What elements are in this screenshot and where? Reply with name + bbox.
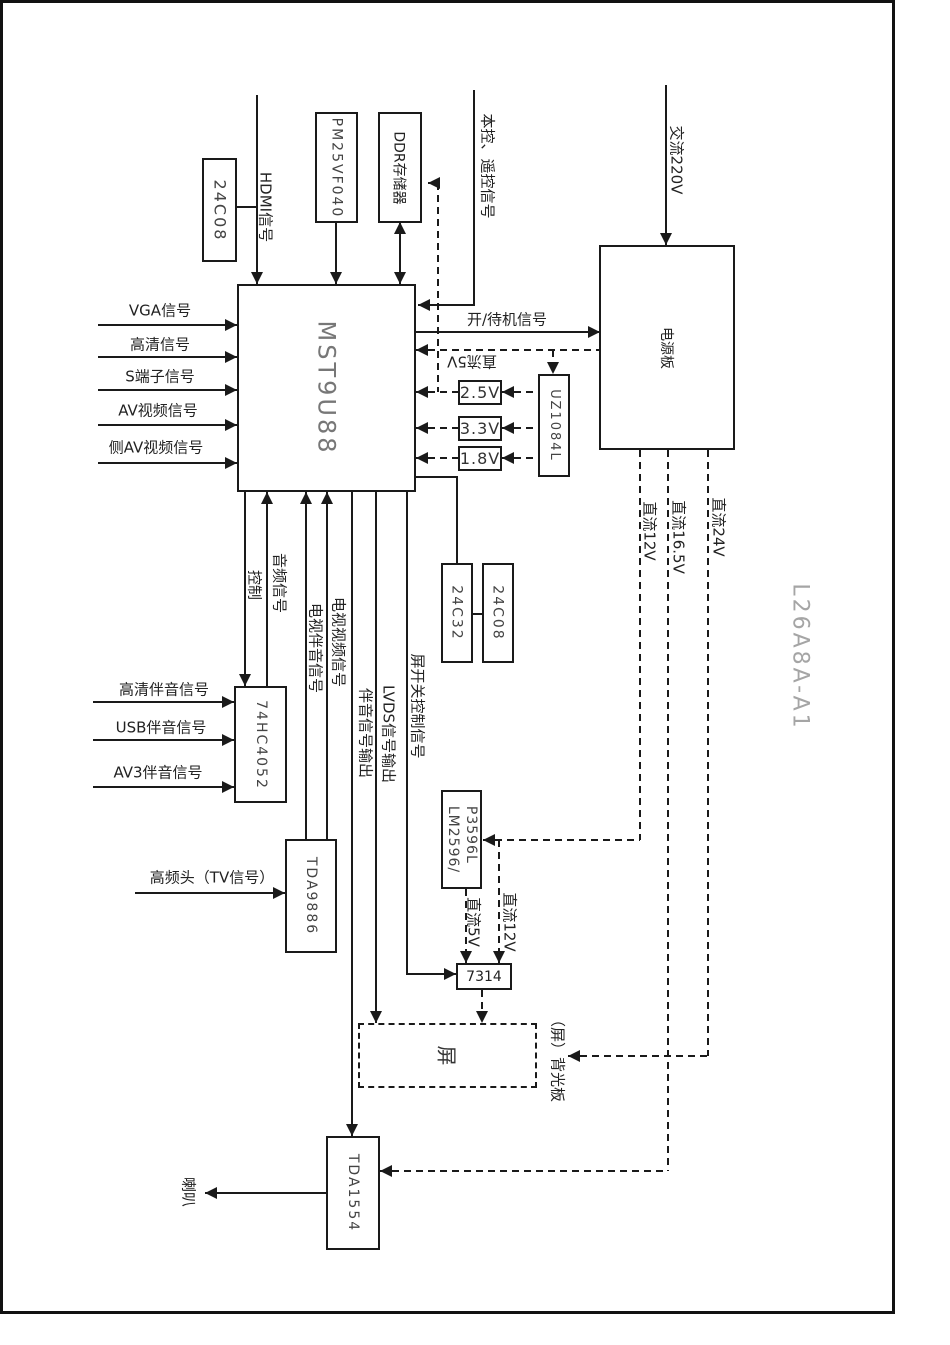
arrowhead [225,419,237,431]
arrowhead [225,457,237,469]
label-hd-audio: 高清伴音信号 [119,679,209,700]
label-tuner: 高频头（TV信号） [150,867,274,888]
rail-2v5: 2.5V [458,380,502,405]
wire-ddr-feed-v [437,183,439,392]
arrowhead [428,177,440,189]
arrowhead [222,696,234,708]
chip-label-line2: P3596L [462,806,480,873]
label-lvds-out: LVDS信号输出 [379,685,400,783]
chip-label: 24C32 [449,585,465,640]
arrowhead [547,362,559,374]
arrowhead [416,386,428,398]
label-audio-out: 伴音信号输出 [356,688,377,778]
arrowhead [394,272,406,284]
label-vga: VGA信号 [129,300,191,321]
label-usb-audio: USB伴音信号 [116,717,207,738]
wire-av3-audio [93,786,234,788]
model-number: L26A8A-A1 [788,583,813,730]
arrowhead [394,222,406,234]
arrowhead [418,299,430,311]
arrowhead [330,272,342,284]
wire-eeprom-top-stub [237,206,257,208]
label-standby-5v: 直流5V [447,352,497,373]
rail-1v8: 1.8V [458,446,502,471]
schematic-page: 24C08 PM25VF040 DDR存储器 MST9U88 电源板 UZ108… [0,0,950,1345]
rail-3v3: 3.3V [458,416,502,441]
chip-label: MST9U88 [312,321,340,456]
chip-label: 24C08 [210,179,229,241]
arrowhead [239,674,251,686]
arrowhead [460,951,472,963]
arrowhead [225,351,237,363]
label-tv-audio: 电视伴音信号 [306,603,327,693]
wire-24c32-h [416,476,458,478]
chip-audio-amp-tda1554: TDA1554 [326,1136,380,1250]
chip-label: PM25VF040 [329,117,345,218]
label-hd: 高清信号 [130,334,190,355]
arrowhead [444,968,456,980]
arrowhead [493,951,505,963]
arrowhead [251,272,263,284]
chip-label: 24C08 [490,585,506,640]
arrowhead [273,887,285,899]
label-panel-switch: 屏开关控制信号 [408,653,429,758]
chip-label: 74HC4052 [253,700,269,790]
label-control: 控制 [245,570,266,600]
chip-label: 7314 [466,969,502,985]
arrowhead [261,492,273,504]
arrowhead [416,344,428,356]
chip-label: TDA1554 [345,1154,361,1232]
rail-label: 2.5V [460,383,500,402]
arrowhead [222,734,234,746]
arrowhead [416,422,428,434]
chip-eeprom-24c08-mid: 24C08 [482,563,514,663]
chip-ddr-memory: DDR存储器 [378,112,422,223]
label-ac220: 交流220V [667,126,688,195]
wire-dc12-rail-h [483,839,640,841]
block-label: 电源板 [657,327,677,369]
label-svideo: S端子信号 [125,366,195,387]
arrowhead [222,781,234,793]
wire-tuner [135,892,285,894]
wire-hd-audio [93,701,234,703]
label-dc12: 直流12V [640,501,661,560]
chip-label-line1: LM2596/ [444,806,462,873]
wire-audio-out [351,492,353,1136]
arrowhead [300,492,312,504]
arrowhead [588,326,600,338]
chip-label: TDA9886 [303,857,319,935]
chip-label: UZ1084L [547,389,562,462]
label-on-standby: 开/待机信号 [467,309,547,330]
chip-label: LM2596/P3596L [444,806,479,873]
wire-hd [98,356,237,358]
label-audio: 音频信号 [270,553,291,613]
label-side-av: 侧AV视频信号 [109,437,204,458]
label-dc16-5: 直流16.5V [669,500,690,574]
label-backlight: （屏）背光板 [548,1012,569,1102]
chip-flash-pm25vf040: PM25VF040 [315,112,358,223]
rail-label: 3.3V [460,419,500,438]
wire-on-standby [416,331,600,333]
arrowhead [205,1187,217,1199]
arrowhead [660,233,672,245]
arrowhead [483,834,495,846]
arrowhead [321,492,333,504]
wire-standby5v [416,349,600,351]
label-av: AV视频信号 [118,400,198,421]
label-av3-audio: AV3伴音信号 [113,762,202,783]
wire-av [98,424,237,426]
label-dc24: 直流24V [709,497,730,556]
chip-audio-switch-74hc4052: 74HC4052 [234,686,287,803]
label-local-remote: 本控、遥控信号 [478,113,499,218]
label-tv-video: 电视视频信号 [329,597,350,687]
chip-if-demod-tda9886: TDA9886 [285,839,337,953]
wire-24c32-v [456,477,458,563]
chip-7314: 7314 [456,963,512,990]
label-speaker: 喇叭 [179,1177,200,1207]
panel-block: 屏 [358,1023,537,1088]
chip-label: DDR存储器 [390,131,410,204]
power-board: 电源板 [599,245,735,450]
chip-dcdc-lm2596: LM2596/P3596L [441,790,482,889]
chip-ldo-uz1084l: UZ1084L [538,374,570,477]
panel-label: 屏 [433,1046,462,1066]
chip-eeprom-24c32: 24C32 [441,563,473,663]
wire-24c32-24c08 [473,613,482,615]
wire-speaker [205,1192,326,1194]
arrowhead [502,386,514,398]
arrowhead [225,384,237,396]
arrowhead [502,452,514,464]
wire-svideo [98,389,237,391]
chip-main-mst9u88: MST9U88 [237,284,416,492]
label-dc12-local: 直流12V [500,892,521,951]
label-dc5: 直流5V [464,897,485,947]
arrowhead [476,1011,488,1023]
arrowhead [502,422,514,434]
wire-audio [266,492,268,686]
wire-local-remote-v [473,90,475,305]
wire-usb-audio [93,739,234,741]
arrowhead [416,452,428,464]
wire-side-av [98,462,237,464]
label-hdmi: HDMI信号 [256,172,277,242]
arrowhead [346,1124,358,1136]
chip-eeprom-24c08-top: 24C08 [202,158,237,262]
arrowhead [370,1011,382,1023]
arrowhead [225,319,237,331]
arrowhead [380,1165,392,1177]
wire-vga [98,324,237,326]
rail-label: 1.8V [460,449,500,468]
wire-dc24-backlight [568,1055,708,1057]
wire-dc16-rail-h [380,1170,668,1172]
arrowhead [568,1050,580,1062]
